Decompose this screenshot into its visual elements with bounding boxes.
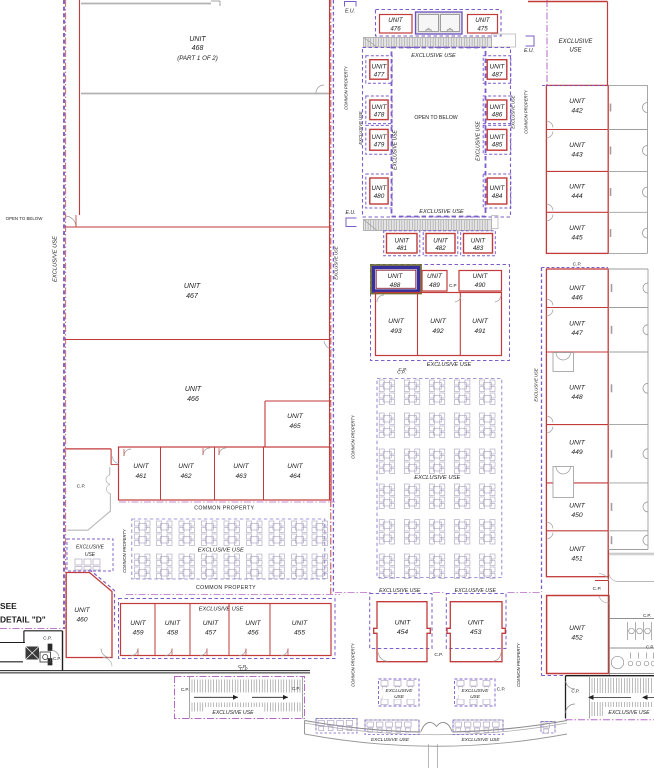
svg-text:UNIT: UNIT [245, 620, 261, 627]
svg-text:COMMON PROPERTY: COMMON PROPERTY [351, 642, 356, 687]
svg-text:UNIT: UNIT [471, 237, 487, 244]
svg-text:UNIT: UNIT [475, 17, 491, 24]
svg-text:455: 455 [294, 630, 305, 637]
svg-text:UNIT: UNIT [130, 620, 146, 627]
svg-text:EXCLUSIVE: EXCLUSIVE [76, 545, 105, 551]
svg-text:UNIT: UNIT [490, 63, 506, 70]
svg-text:447: 447 [571, 330, 583, 337]
svg-text:UNIT: UNIT [569, 321, 586, 328]
svg-text:C.P.: C.P. [593, 586, 602, 592]
svg-text:EXCLUSIVE USE: EXCLUSIVE USE [476, 120, 482, 160]
svg-text:460: 460 [76, 617, 87, 624]
svg-text:EXCLUSIVE USE: EXCLUSIVE USE [461, 737, 500, 743]
svg-text:EXCLUSIVE: EXCLUSIVE [462, 688, 490, 694]
svg-text:457: 457 [205, 630, 216, 637]
svg-text:E.U.: E.U. [524, 48, 534, 54]
svg-text:477: 477 [374, 71, 385, 78]
svg-text:483: 483 [473, 245, 484, 252]
svg-text:C.P.: C.P. [643, 613, 651, 618]
svg-text:EXCLUSIVE USE: EXCLUSIVE USE [393, 129, 399, 169]
svg-text:OPEN TO BELOW: OPEN TO BELOW [414, 115, 457, 121]
svg-text:UNIT: UNIT [569, 440, 586, 447]
svg-text:C.P.: C.P. [646, 645, 654, 650]
svg-text:476: 476 [390, 26, 401, 33]
svg-text:EXCLUSIVE USE: EXCLUSIVE USE [371, 737, 410, 743]
svg-text:490: 490 [475, 282, 486, 289]
svg-text:UNIT: UNIT [490, 104, 506, 111]
svg-text:UNIT: UNIT [388, 318, 405, 325]
svg-text:UNIT: UNIT [233, 463, 249, 470]
svg-text:451: 451 [571, 556, 583, 563]
svg-text:485: 485 [492, 142, 503, 149]
svg-text:443: 443 [571, 152, 583, 159]
svg-text:491: 491 [474, 328, 486, 335]
svg-text:UNIT: UNIT [468, 620, 485, 627]
svg-text:C.P.: C.P. [497, 687, 506, 693]
svg-text:UNIT: UNIT [569, 503, 586, 510]
svg-text:EXCLUSIVE: EXCLUSIVE [386, 688, 414, 694]
svg-text:481: 481 [397, 245, 407, 252]
svg-text:UNIT: UNIT [427, 273, 443, 280]
svg-text:C.P.: C.P. [573, 262, 582, 268]
svg-text:464: 464 [289, 473, 300, 480]
svg-text:UNIT: UNIT [490, 134, 506, 141]
svg-text:USE: USE [470, 694, 481, 700]
svg-text:COMMON PROPERTY: COMMON PROPERTY [344, 65, 349, 110]
svg-text:UNIT: UNIT [569, 142, 586, 149]
svg-text:487: 487 [492, 71, 503, 78]
svg-text:465: 465 [289, 423, 301, 430]
svg-text:466: 466 [187, 396, 199, 403]
svg-text:UNIT: UNIT [569, 385, 586, 392]
svg-text:UNIT: UNIT [203, 620, 219, 627]
svg-text:EXCLUSIVE USE: EXCLUSIVE USE [334, 246, 339, 279]
svg-text:UNIT: UNIT [184, 283, 201, 290]
svg-text:EXCLUSIVE USE: EXCLUSIVE USE [212, 710, 254, 716]
svg-text:EXCLUSIVE USE: EXCLUSIVE USE [53, 236, 59, 282]
svg-text:UNIT: UNIT [569, 98, 586, 105]
svg-text:EXCLUSIVE USE: EXCLUSIVE USE [534, 368, 539, 401]
svg-text:UNIT: UNIT [133, 463, 149, 470]
svg-text:UNIT: UNIT [287, 463, 303, 470]
svg-text:463: 463 [235, 473, 246, 480]
svg-text:UNIT: UNIT [371, 104, 387, 111]
svg-text:EXCLUSIVE: EXCLUSIVE [559, 39, 594, 45]
svg-text:EXCLUSIVE USE: EXCLUSIVE USE [411, 53, 456, 59]
svg-text:468: 468 [192, 45, 204, 52]
svg-text:UNIT: UNIT [569, 285, 586, 292]
svg-text:UNIT: UNIT [178, 463, 194, 470]
svg-text:C.P.: C.P. [292, 686, 300, 691]
svg-text:C.P.: C.P. [434, 652, 443, 658]
svg-text:C.P.: C.P. [77, 484, 86, 490]
svg-text:456: 456 [247, 630, 258, 637]
svg-text:USE: USE [394, 694, 405, 700]
svg-text:UNIT: UNIT [371, 63, 387, 70]
svg-text:448: 448 [571, 394, 583, 401]
svg-text:COMMON PROPERTY: COMMON PROPERTY [516, 642, 521, 687]
svg-text:467: 467 [186, 293, 199, 300]
svg-text:UNIT: UNIT [569, 184, 586, 191]
svg-text:480: 480 [374, 193, 385, 200]
svg-text:493: 493 [390, 328, 402, 335]
svg-text:UNIT: UNIT [569, 546, 586, 553]
svg-text:SEE: SEE [0, 601, 17, 611]
svg-text:EXCLUSIVE USE: EXCLUSIVE USE [455, 588, 497, 594]
svg-text:UNIT: UNIT [395, 620, 412, 627]
svg-text:EXCLUSIVE USE: EXCLUSIVE USE [414, 475, 460, 481]
svg-text:488: 488 [390, 282, 401, 289]
svg-text:UNIT: UNIT [395, 237, 411, 244]
svg-text:C.P.: C.P. [53, 656, 61, 661]
svg-text:UNIT: UNIT [165, 620, 181, 627]
svg-text:484: 484 [492, 193, 503, 200]
svg-text:E.U.: E.U. [345, 210, 355, 216]
svg-text:COMMON PROPERTY: COMMON PROPERTY [524, 89, 529, 134]
svg-text:COMMON PROPERTY: COMMON PROPERTY [196, 585, 256, 591]
svg-text:EXCLUSIVE USE: EXCLUSIVE USE [379, 588, 421, 594]
svg-text:458: 458 [167, 630, 178, 637]
svg-text:450: 450 [571, 512, 583, 519]
svg-text:EXCLUSIVE USE: EXCLUSIVE USE [608, 710, 650, 716]
svg-text:478: 478 [374, 112, 385, 119]
svg-text:482: 482 [435, 245, 446, 252]
svg-text:442: 442 [571, 108, 583, 115]
svg-text:C.P: C.P [449, 283, 457, 288]
svg-text:USE: USE [85, 552, 96, 558]
svg-text:UNIT: UNIT [74, 607, 90, 614]
svg-text:(PART 1 OF 2): (PART 1 OF 2) [177, 55, 218, 62]
svg-text:COMMON PROPERTY: COMMON PROPERTY [194, 506, 254, 512]
svg-text:489: 489 [429, 282, 440, 289]
svg-text:UNIT: UNIT [433, 237, 449, 244]
svg-text:453: 453 [470, 629, 482, 636]
svg-text:462: 462 [180, 473, 191, 480]
svg-text:449: 449 [571, 449, 583, 456]
svg-text:USE: USE [569, 48, 582, 54]
svg-text:UNIT: UNIT [371, 185, 387, 192]
svg-text:444: 444 [571, 193, 583, 200]
svg-text:454: 454 [397, 629, 409, 636]
svg-text:UNIT: UNIT [490, 185, 506, 192]
svg-text:EXCLUSIVE USE: EXCLUSIVE USE [419, 209, 464, 215]
svg-text:C.P.: C.P. [43, 636, 52, 642]
svg-text:EXCLUSIVE USE: EXCLUSIVE USE [198, 548, 244, 554]
svg-text:UNIT: UNIT [472, 318, 489, 325]
svg-text:461: 461 [135, 473, 146, 480]
svg-text:OPEN TO BELOW: OPEN TO BELOW [6, 216, 44, 221]
svg-text:486: 486 [492, 112, 503, 119]
svg-text:C.P.: C.P. [181, 687, 189, 692]
svg-text:DETAIL "D": DETAIL "D" [0, 615, 46, 625]
svg-text:445: 445 [571, 235, 583, 242]
svg-text:479: 479 [374, 142, 385, 149]
svg-text:452: 452 [571, 635, 583, 642]
svg-text:475: 475 [477, 26, 488, 33]
svg-text:EXCLUSIVE USE: EXCLUSIVE USE [427, 362, 472, 368]
svg-text:EXCLUSIVE USE: EXCLUSIVE USE [199, 607, 244, 613]
svg-text:UNIT: UNIT [292, 620, 308, 627]
svg-text:446: 446 [571, 295, 583, 302]
svg-text:459: 459 [132, 630, 143, 637]
svg-text:C.P.: C.P. [238, 664, 247, 670]
svg-text:C.P.: C.P. [571, 689, 579, 694]
svg-text:UNIT: UNIT [569, 225, 586, 232]
svg-text:UNIT: UNIT [569, 625, 586, 632]
svg-text:UNIT: UNIT [185, 386, 202, 393]
svg-text:UNIT: UNIT [371, 134, 387, 141]
svg-text:UNIT: UNIT [287, 413, 304, 420]
svg-text:UNIT: UNIT [388, 273, 404, 280]
svg-text:E.U.: E.U. [345, 9, 355, 15]
svg-text:UNIT: UNIT [189, 36, 206, 43]
svg-text:COMMON PROPERTY: COMMON PROPERTY [122, 528, 127, 573]
svg-text:UNIT: UNIT [430, 318, 447, 325]
svg-text:492: 492 [432, 328, 444, 335]
svg-text:UNIT: UNIT [388, 17, 404, 24]
svg-text:C.P.: C.P. [397, 370, 406, 376]
svg-text:UNIT: UNIT [473, 273, 489, 280]
svg-text:COMMON PROPERTY: COMMON PROPERTY [351, 414, 356, 459]
